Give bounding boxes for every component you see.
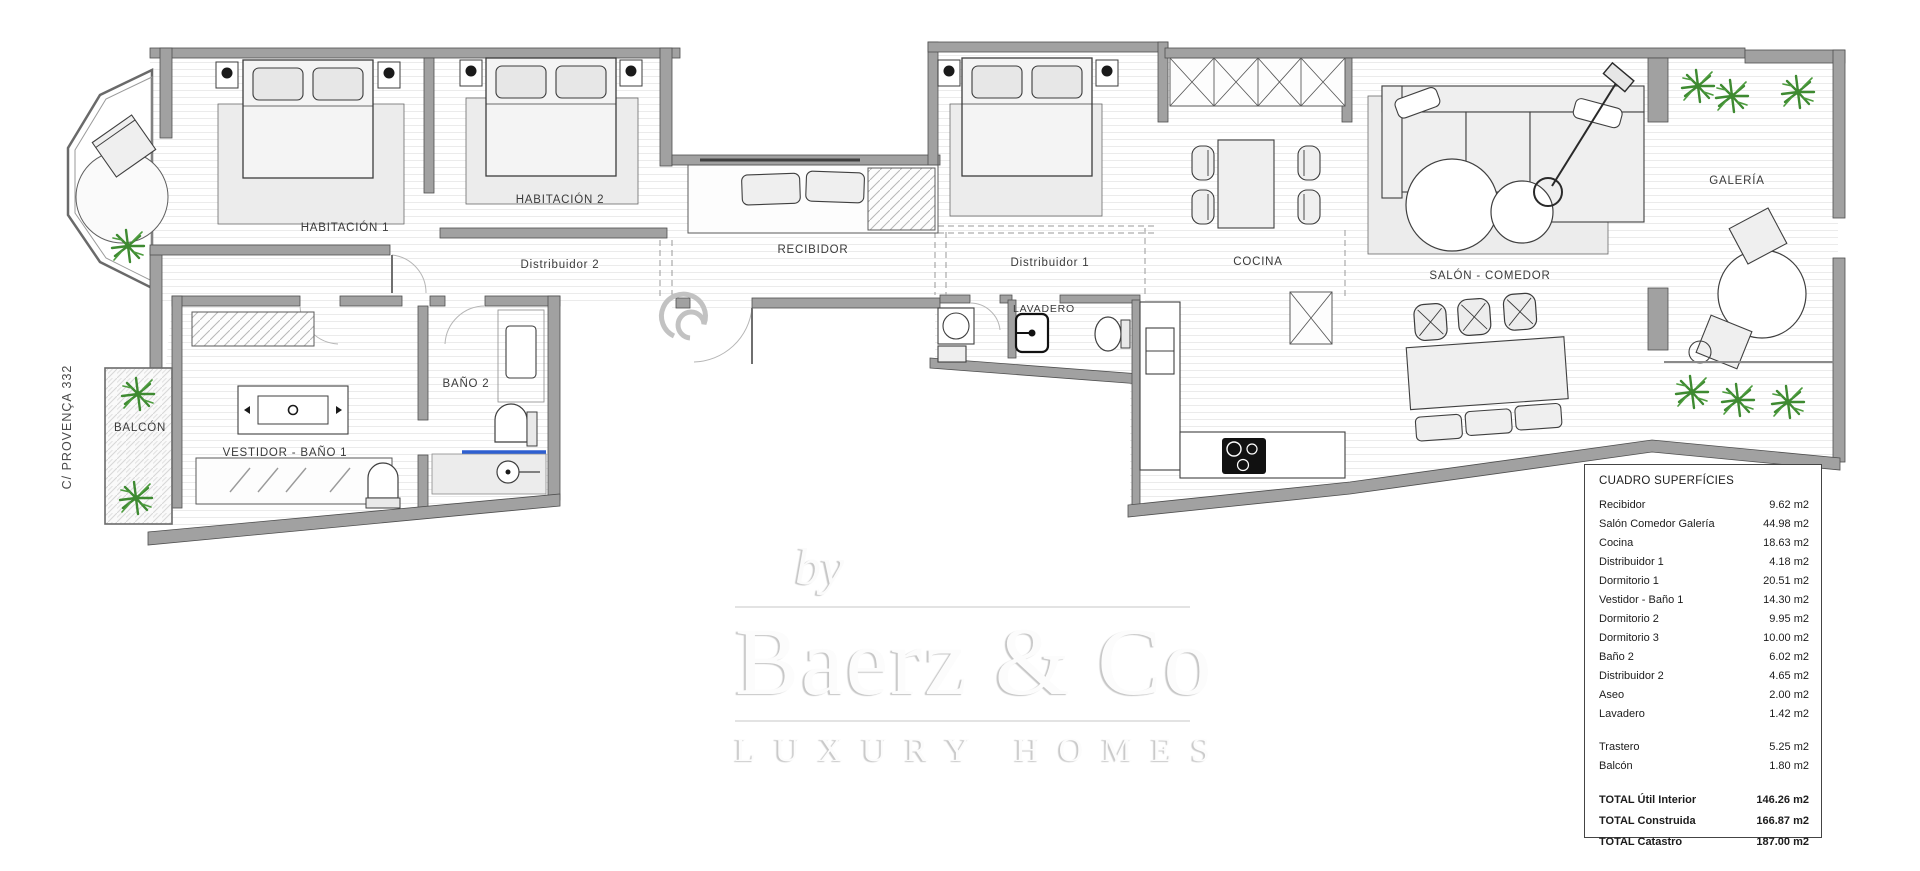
nightstand [938,60,960,86]
table-total-row: TOTAL Catastro187.00 m2 [1599,832,1809,853]
table-row: Recibidor9.62 m2 [1599,496,1809,515]
table-row: Distribuidor 14.18 m2 [1599,553,1809,572]
label-vestidor-bano1: VESTIDOR - BAÑO 1 [223,446,348,459]
hall-bench [688,160,938,233]
table-row: Balcón1.80 m2 [1599,757,1809,776]
table-row: Aseo2.00 m2 [1599,686,1809,705]
table-row: Trastero5.25 m2 [1599,738,1809,757]
bedroom-3 [938,58,1118,216]
floorplan-page: HABITACIÓN 1 HABITACIÓN 2 Distribuidor 2… [0,0,1920,871]
table-row: Cocina18.63 m2 [1599,534,1809,553]
table-row: Lavadero1.42 m2 [1599,705,1809,724]
chair [1298,146,1320,180]
chair [1192,146,1214,180]
label-habitacion1: HABITACIÓN 1 [301,221,390,234]
label-lavadero: LAVADERO [1013,303,1075,315]
label-cocina: COCINA [1233,256,1283,268]
chair [1457,298,1491,336]
label-galeria: GALERÍA [1709,174,1764,187]
bedroom-2 [460,58,642,204]
surfaces-table: CUADRO SUPERFÍCIES Recibidor9.62 m2 Saló… [1584,464,1822,838]
nightstand [216,62,238,88]
label-salon-comedor: SALÓN - COMEDOR [1429,269,1550,282]
bed [243,60,373,178]
table-row: Distribuidor 24.65 m2 [1599,667,1809,686]
nightstand [460,60,482,86]
label-recibidor: RECIBIDOR [777,244,848,256]
table-row: Baño 26.02 m2 [1599,648,1809,667]
table-total-row: TOTAL Construida166.87 m2 [1599,811,1809,832]
chair [1192,190,1214,224]
table-total-row: TOTAL Útil Interior146.26 m2 [1599,790,1809,811]
table-row: Vestidor - Baño 114.30 m2 [1599,591,1809,610]
chair [1413,303,1447,341]
label-habitacion2: HABITACIÓN 2 [516,193,605,206]
laundry-sink [1016,314,1048,352]
coffee-table [1491,181,1553,243]
table-row: Dormitorio 310.00 m2 [1599,629,1809,648]
street-label: C/ PROVENÇA 332 [60,342,74,512]
counter [1140,302,1180,470]
label-balcon: BALCÓN [114,421,166,434]
balcony [105,368,172,524]
toilet [1095,317,1130,351]
table-row: Dormitorio 120.51 m2 [1599,572,1809,591]
bed [486,58,616,176]
table-row: Dormitorio 29.95 m2 [1599,610,1809,629]
nightstand [378,62,400,88]
hob [1222,438,1266,474]
vanity-island [238,386,348,434]
dining-table [1406,337,1568,410]
label-distribuidor1: Distribuidor 1 [1011,257,1090,269]
chair [1298,190,1320,224]
watermark: by Baerz & Co LUXURY HOMES [735,538,1190,838]
label-distribuidor2: Distribuidor 2 [521,259,600,271]
nightstand [1096,60,1118,86]
watermark-by: by [795,538,1190,598]
bed [962,58,1092,176]
chair [1503,293,1537,331]
coffee-table [1406,159,1498,251]
watermark-brand: Baerz & Co [735,608,1190,716]
watermark-tagline: LUXURY HOMES [735,732,1190,770]
label-bano2: BAÑO 2 [443,377,490,390]
nightstand [620,60,642,86]
toilet [366,463,400,508]
surfaces-table-title: CUADRO SUPERFÍCIES [1599,475,1809,487]
watermark-rule-bottom [735,720,1190,722]
table-row: Salón Comedor Galería44.98 m2 [1599,515,1809,534]
kitchen-table [1218,140,1274,228]
